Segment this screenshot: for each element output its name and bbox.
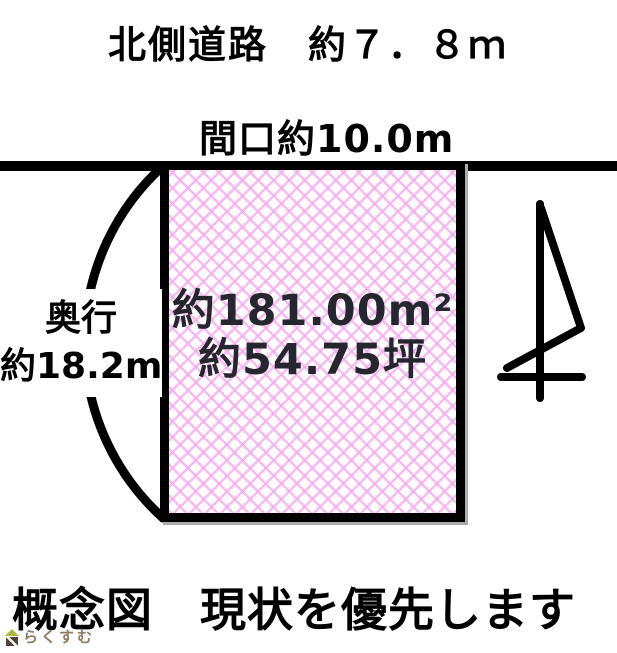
- rakusumu-logo: らくすむ: [5, 629, 95, 646]
- concept-diagram: 北側道路 約７．８ｍ 間口約10.0m 約181.00m² 約54.75坪 奥行…: [0, 0, 617, 653]
- frontage-label: 間口約10.0m: [199, 108, 454, 163]
- house-roof-icon: [5, 629, 19, 636]
- diagram-caption: 概念図 現状を優先します: [12, 574, 576, 640]
- area-sqm-label: 約181.00m²: [172, 287, 454, 335]
- depth-label: 奥行 約18.2m: [0, 289, 162, 397]
- north-arrow-icon: [501, 204, 582, 398]
- logo-text: らくすむ: [23, 630, 95, 646]
- land-parcel: 約181.00m² 約54.75坪: [160, 161, 465, 522]
- rakusumu-house-icon: [5, 629, 19, 646]
- depth-label-line1: 奥行: [0, 295, 162, 343]
- depth-label-line2: 約18.2m: [0, 343, 162, 391]
- north-road-label: 北側道路 約７．８ｍ: [108, 14, 508, 69]
- area-tsubo-label: 約54.75坪: [198, 336, 427, 384]
- house-body-icon: [6, 637, 18, 646]
